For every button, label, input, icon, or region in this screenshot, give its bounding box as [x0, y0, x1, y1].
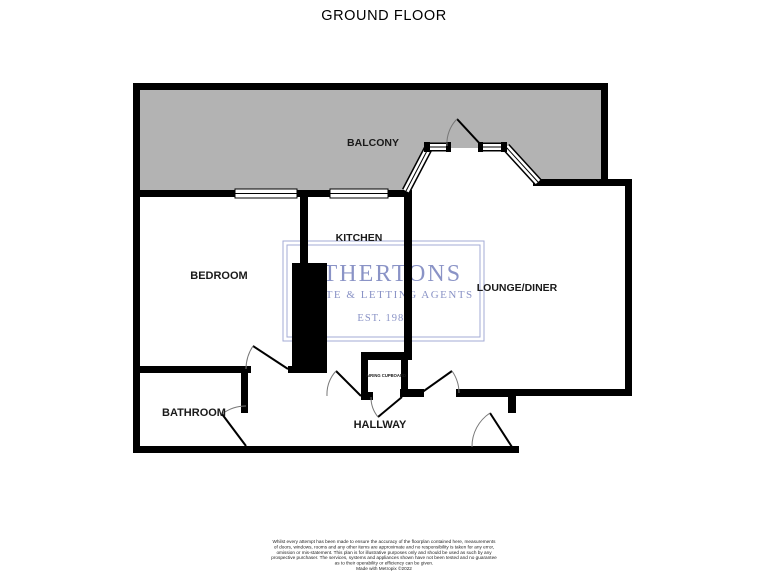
wall-segment	[288, 366, 296, 373]
wall-segment	[133, 446, 519, 453]
wall-segment	[400, 389, 424, 397]
lounge-diner-label: LOUNGE/DINER	[477, 282, 558, 294]
kitchen-door	[327, 371, 361, 396]
bedroom-door	[246, 346, 288, 369]
floorplan-drawing: ATHERTONS ESTATE & LETTING AGENTS EST. 1…	[0, 0, 768, 576]
wall-segment	[133, 83, 608, 90]
hallway-label: HALLWAY	[354, 419, 407, 431]
wall-segment	[133, 83, 140, 453]
watermark-agency-name: ATHERTONS	[306, 261, 462, 287]
bathroom-label: BATHROOM	[162, 407, 226, 419]
airing-cupboard-label: AIRING CUPBOARD	[366, 373, 406, 378]
balcony-label: BALCONY	[347, 137, 399, 149]
wall-segment	[456, 389, 512, 397]
wall-segment	[533, 179, 632, 186]
wall-segment	[601, 83, 608, 186]
utility-column	[292, 263, 327, 373]
disclaimer: Whilst every attempt has been made to en…	[104, 539, 664, 576]
wall-segment	[512, 389, 632, 396]
wall-segment	[404, 190, 412, 360]
airing-cupboard-door	[371, 397, 402, 417]
credit-line: Made with Metropix ©2022	[104, 566, 664, 571]
kitchen-window	[330, 189, 388, 198]
kitchen-label: KITCHEN	[336, 232, 383, 244]
bedroom-window	[235, 189, 297, 198]
wall-segment	[300, 190, 308, 266]
wall-segment	[133, 366, 251, 373]
floorplan-page: GROUND FLOOR ATHERTONS ESTATE & LETTING …	[0, 0, 768, 576]
bedroom-label: BEDROOM	[190, 270, 247, 282]
wall-segment	[625, 179, 632, 396]
lounge-door	[421, 371, 459, 393]
entrance-door	[472, 413, 512, 447]
watermark-established: EST. 1985	[357, 313, 410, 324]
